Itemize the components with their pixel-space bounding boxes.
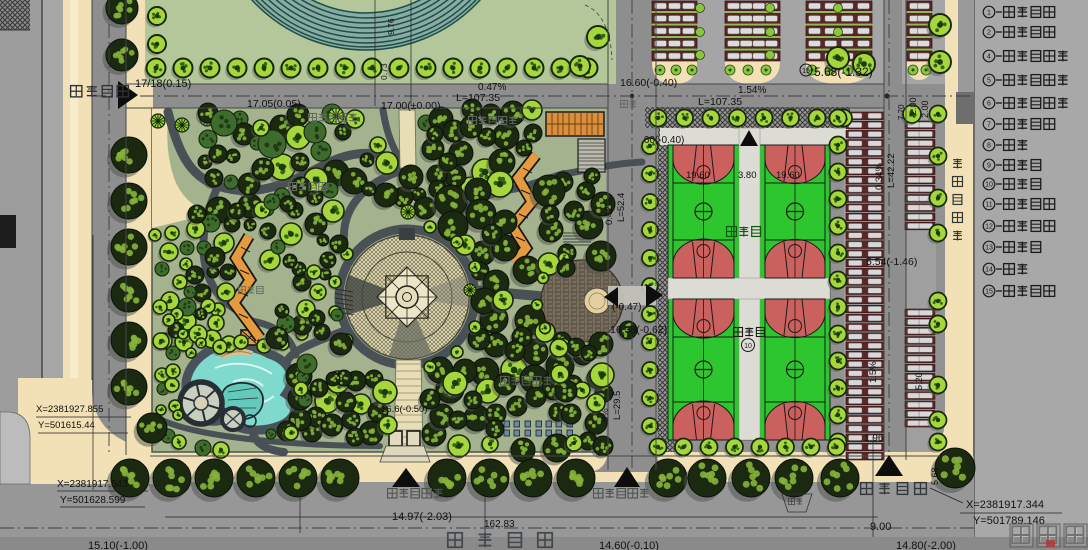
svg-text:17.00(±0.00): 17.00(±0.00) xyxy=(381,100,440,112)
svg-text:L=29.5: L=29.5 xyxy=(612,391,623,420)
svg-text:X=2381917.543: X=2381917.543 xyxy=(57,479,128,490)
svg-text:L=52.4: L=52.4 xyxy=(616,193,627,222)
svg-text:6: 6 xyxy=(987,101,991,108)
svg-text:L=42.22: L=42.22 xyxy=(886,153,897,188)
svg-text:.60(-0.40): .60(-0.40) xyxy=(641,135,684,146)
svg-text:1.5%: 1.5% xyxy=(868,361,879,383)
svg-text:13: 13 xyxy=(985,245,993,252)
svg-text:1.54%: 1.54% xyxy=(738,85,766,96)
svg-text:1: 1 xyxy=(987,10,991,17)
svg-text:2.00: 2.00 xyxy=(920,100,930,118)
svg-text:17/18(0.15): 17/18(0.15) xyxy=(135,78,191,90)
svg-text:15: 15 xyxy=(985,289,993,296)
svg-text:10: 10 xyxy=(744,343,752,350)
svg-text:8: 8 xyxy=(987,143,991,150)
svg-text:15.10(-1.00): 15.10(-1.00) xyxy=(88,540,148,550)
svg-text:5%: 5% xyxy=(600,408,611,422)
svg-text:9: 9 xyxy=(987,163,991,170)
svg-text:10: 10 xyxy=(985,182,993,189)
svg-text:1.96: 1.96 xyxy=(864,433,884,444)
svg-text:16.38(-0.62): 16.38(-0.62) xyxy=(610,324,667,336)
svg-text:0.34%: 0.34% xyxy=(874,163,885,190)
svg-text:15: 15 xyxy=(802,68,810,75)
svg-text:14.80(-2.00): 14.80(-2.00) xyxy=(896,540,956,550)
svg-text:11: 11 xyxy=(985,202,992,209)
svg-text:7.70: 7.70 xyxy=(897,104,906,120)
svg-text:0.47%: 0.47% xyxy=(478,82,506,93)
svg-text:9.00: 9.00 xyxy=(870,521,891,533)
svg-text:L=107.35: L=107.35 xyxy=(698,96,742,108)
svg-text:0.73: 0.73 xyxy=(379,63,389,80)
svg-text:19.60: 19.60 xyxy=(776,170,800,181)
svg-text:17.05(0.05): 17.05(0.05) xyxy=(247,98,301,110)
svg-text:5.54(-1.46): 5.54(-1.46) xyxy=(866,256,917,268)
svg-text:Y=501628.599: Y=501628.599 xyxy=(60,495,126,506)
svg-text:Y=501615.44: Y=501615.44 xyxy=(38,420,95,431)
svg-text:(-0.47): (-0.47) xyxy=(612,302,641,313)
svg-text:7: 7 xyxy=(987,122,991,129)
svg-text:X=2381917.344: X=2381917.344 xyxy=(966,499,1044,511)
svg-text:14: 14 xyxy=(985,267,993,274)
svg-text:14.60(-0.10): 14.60(-0.10) xyxy=(599,540,659,550)
svg-text:0.42%: 0.42% xyxy=(604,198,615,225)
svg-text:X=2381927.855: X=2381927.855 xyxy=(36,404,103,415)
svg-text:5.68: 5.68 xyxy=(930,467,940,485)
svg-text:4: 4 xyxy=(987,54,991,61)
svg-text:12: 12 xyxy=(985,224,993,231)
svg-text:5.68(-1.32): 5.68(-1.32) xyxy=(814,65,873,79)
svg-text:2.00: 2.00 xyxy=(908,97,918,115)
svg-text:5.20: 5.20 xyxy=(914,372,924,390)
svg-text:14.97(-2.03): 14.97(-2.03) xyxy=(392,511,452,523)
svg-text:16.60(-0.40): 16.60(-0.40) xyxy=(620,77,677,89)
svg-text:3.80: 3.80 xyxy=(738,170,757,181)
svg-text:9.76: 9.76 xyxy=(386,18,396,35)
svg-text:L=107.35: L=107.35 xyxy=(456,92,500,104)
svg-text:16.6(-0.50): 16.6(-0.50) xyxy=(381,404,427,415)
svg-text:162.83: 162.83 xyxy=(484,519,515,530)
svg-text:Y=501789.146: Y=501789.146 xyxy=(973,515,1045,527)
svg-text:5: 5 xyxy=(987,78,991,85)
svg-text:2: 2 xyxy=(987,30,991,37)
svg-text:19.60: 19.60 xyxy=(686,170,710,181)
